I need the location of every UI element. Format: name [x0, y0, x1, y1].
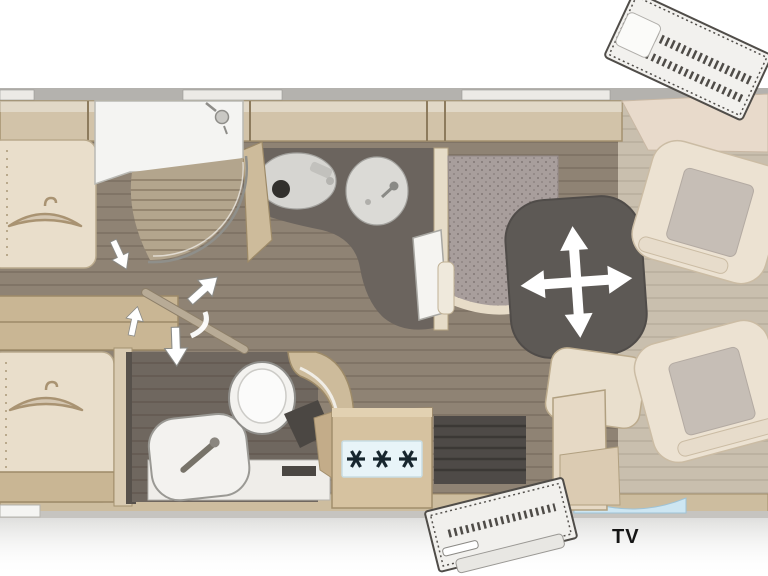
- ground-shadow: [0, 514, 768, 576]
- movable-table: [503, 193, 650, 360]
- step-chest: [0, 296, 178, 350]
- counter-top-edge: [332, 408, 432, 417]
- kitchen: [314, 408, 432, 508]
- window: [0, 90, 34, 100]
- single-bed-top: [0, 140, 96, 268]
- basin-drain-small: [365, 199, 371, 205]
- tv-cabinet-shelf: [560, 447, 620, 505]
- round-basin-left: [258, 153, 336, 209]
- dispenser: [326, 177, 334, 185]
- floorplan-svg: TV: [0, 0, 768, 576]
- locker-highlight: [0, 101, 622, 112]
- floorplan-image: TV: [0, 0, 768, 576]
- window: [0, 505, 40, 517]
- toilet-seat: [238, 369, 286, 423]
- tv-label: TV: [612, 526, 640, 548]
- window: [462, 90, 610, 100]
- dinette-armrest: [438, 262, 454, 314]
- round-basin-right: [346, 157, 408, 225]
- window: [183, 90, 282, 100]
- entrance-doorway: [434, 416, 526, 484]
- counter-slot: [282, 466, 316, 476]
- washbasin: [146, 411, 252, 503]
- basin-drain: [272, 180, 290, 198]
- under-bed-drawer: [0, 472, 114, 502]
